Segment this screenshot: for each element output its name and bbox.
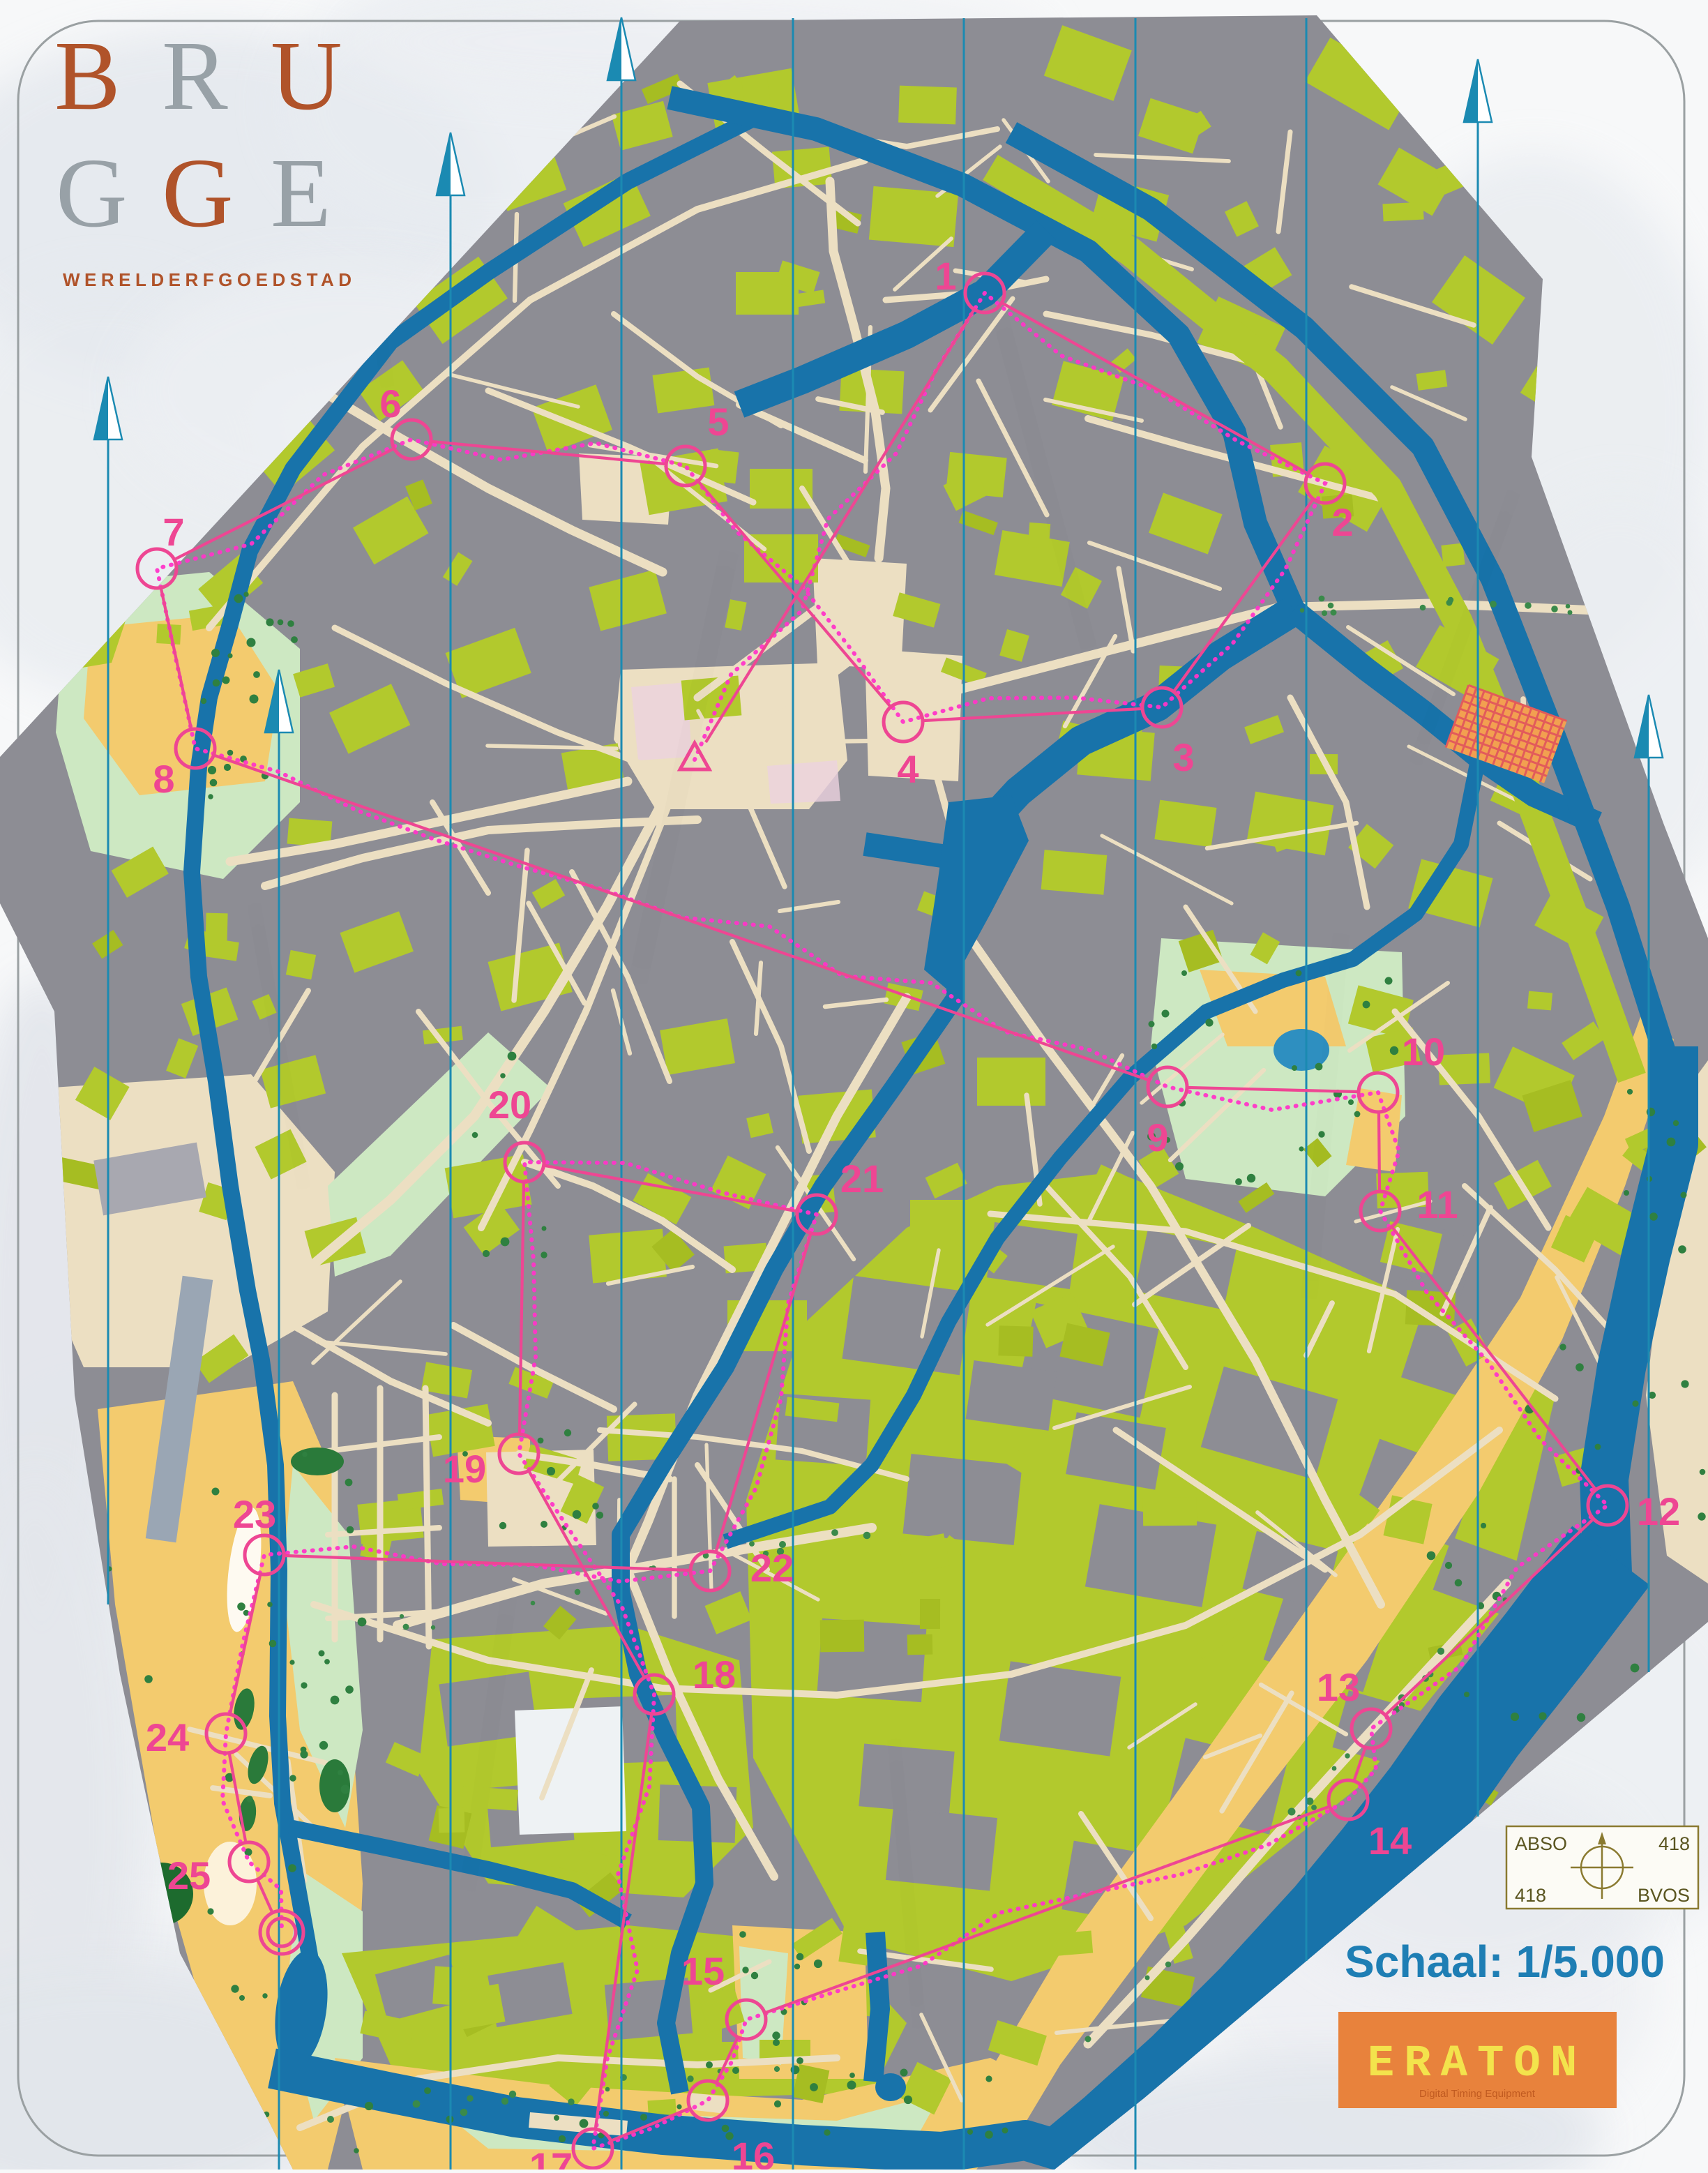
svg-text:E: E [271,137,331,248]
svg-text:16: 16 [732,2134,775,2170]
svg-text:Digital Timing Equipment: Digital Timing Equipment [1419,2088,1536,2100]
svg-text:B: B [54,20,121,130]
svg-text:U: U [271,20,342,130]
svg-text:17: 17 [529,2144,573,2170]
svg-text:G: G [162,137,234,248]
svg-text:418: 418 [1515,1885,1546,1906]
svg-text:24: 24 [146,1715,189,1759]
svg-text:418: 418 [1658,1833,1690,1854]
svg-text:21: 21 [840,1157,884,1201]
svg-text:6: 6 [379,382,401,426]
svg-text:4: 4 [897,747,919,791]
svg-text:12: 12 [1637,1489,1680,1533]
svg-text:R: R [162,20,228,130]
svg-text:19: 19 [443,1447,486,1491]
svg-text:WERELDERFGOEDSTAD: WERELDERFGOEDSTAD [63,269,356,290]
svg-text:8: 8 [153,757,174,801]
svg-text:ERATON: ERATON [1368,2039,1587,2089]
svg-text:G: G [56,137,128,248]
svg-text:13: 13 [1317,1665,1360,1709]
svg-text:9: 9 [1147,1115,1168,1159]
svg-text:18: 18 [693,1653,736,1697]
svg-text:3: 3 [1172,735,1194,779]
svg-text:Schaal: 1/5.000: Schaal: 1/5.000 [1345,1937,1665,1987]
svg-text:23: 23 [233,1492,276,1536]
svg-text:ABSO: ABSO [1515,1833,1567,1854]
svg-text:2: 2 [1331,500,1353,544]
svg-text:BVOS: BVOS [1638,1885,1690,1906]
svg-text:22: 22 [750,1546,794,1590]
svg-text:10: 10 [1402,1030,1445,1074]
svg-text:5: 5 [707,400,729,444]
svg-text:11: 11 [1416,1182,1458,1226]
svg-text:1: 1 [935,254,956,298]
svg-text:20: 20 [488,1083,531,1127]
svg-text:14: 14 [1368,1819,1412,1863]
svg-text:7: 7 [163,510,184,554]
svg-text:15: 15 [681,1949,725,1993]
svg-text:25: 25 [167,1854,211,1897]
